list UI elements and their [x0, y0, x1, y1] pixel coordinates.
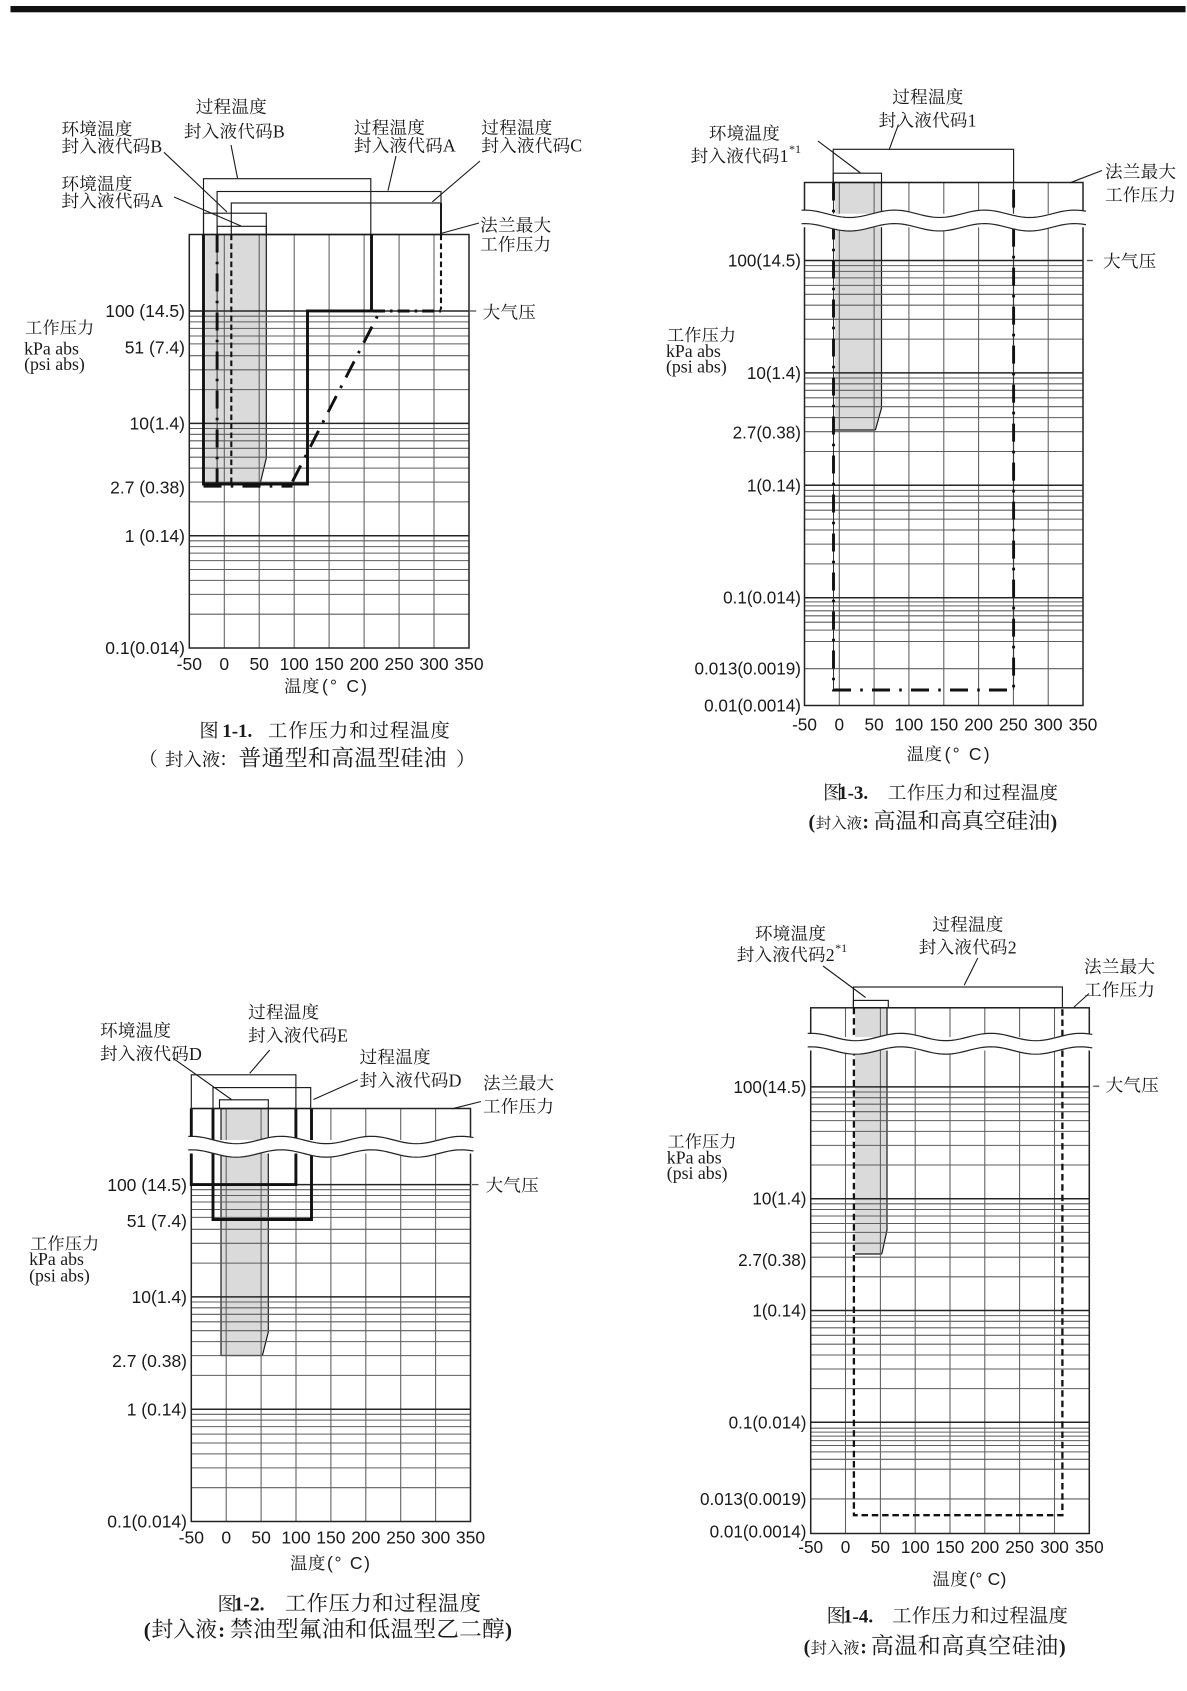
svg-text:10(1.4): 10(1.4): [130, 414, 185, 434]
svg-text:0: 0: [835, 715, 845, 735]
svg-text:300: 300: [419, 654, 448, 674]
svg-text:2.7(0.38): 2.7(0.38): [738, 1251, 806, 1270]
svg-text:*1: *1: [835, 941, 847, 955]
svg-text:1-3.: 1-3.: [838, 783, 868, 804]
svg-text:200: 200: [970, 1537, 999, 1557]
svg-text:0.013(0.0019): 0.013(0.0019): [695, 660, 801, 679]
svg-text:0: 0: [221, 1527, 231, 1547]
svg-text:1 (0.14): 1 (0.14): [125, 526, 185, 546]
svg-text:1 (0.14): 1 (0.14): [127, 1399, 187, 1419]
svg-text:D: D: [449, 1070, 462, 1090]
svg-text::: :: [218, 1618, 225, 1642]
svg-text:0.01(0.0014): 0.01(0.0014): [710, 1523, 807, 1542]
svg-text:50: 50: [249, 654, 269, 674]
svg-text:150: 150: [936, 1537, 965, 1557]
svg-text:(: (: [144, 1618, 151, 1642]
svg-text:150: 150: [316, 1527, 345, 1547]
svg-text:100: 100: [281, 1527, 310, 1547]
svg-text:2: 2: [826, 945, 835, 965]
svg-text:(: (: [809, 811, 816, 833]
svg-text:E: E: [337, 1026, 348, 1046]
svg-text:50: 50: [251, 1527, 271, 1547]
svg-text:150: 150: [314, 654, 343, 674]
svg-text:-50: -50: [798, 1537, 823, 1557]
svg-text:1: 1: [780, 146, 789, 166]
svg-text::: :: [860, 1637, 867, 1659]
svg-text:-50: -50: [179, 1527, 205, 1547]
svg-text:100 (14.5): 100 (14.5): [107, 1175, 187, 1195]
svg-text:-50: -50: [792, 715, 817, 735]
svg-text:): ): [1051, 811, 1058, 833]
svg-text:250: 250: [999, 715, 1028, 735]
svg-text:*1: *1: [789, 142, 801, 156]
svg-text:1-4.: 1-4.: [843, 1606, 873, 1627]
svg-text:200: 200: [351, 1527, 380, 1547]
svg-text:350: 350: [1069, 715, 1098, 735]
svg-text:100 (14.5): 100 (14.5): [105, 301, 185, 321]
svg-text:250: 250: [384, 654, 413, 674]
svg-text:100: 100: [901, 1537, 930, 1557]
svg-text::: :: [862, 811, 869, 833]
svg-text:(psi abs): (psi abs): [29, 1265, 90, 1286]
svg-text:200: 200: [964, 715, 993, 735]
svg-text:A: A: [443, 136, 456, 156]
svg-text:(° C): (° C): [322, 676, 367, 696]
svg-text:B: B: [273, 122, 285, 142]
svg-text:0: 0: [841, 1537, 851, 1557]
svg-text:10(1.4): 10(1.4): [747, 364, 801, 383]
svg-text:51 (7.4): 51 (7.4): [127, 1211, 187, 1231]
svg-text:(° C): (° C): [969, 1569, 1006, 1589]
svg-text:250: 250: [386, 1527, 415, 1547]
svg-text:0.01(0.0014): 0.01(0.0014): [704, 697, 801, 716]
svg-text:10(1.4): 10(1.4): [132, 1287, 187, 1307]
svg-text:C: C: [570, 136, 582, 156]
svg-text:2: 2: [1008, 937, 1017, 957]
svg-text:2.7 (0.38): 2.7 (0.38): [110, 477, 185, 497]
svg-text:50: 50: [865, 715, 884, 735]
svg-text:0: 0: [219, 654, 229, 674]
svg-text:1(0.14): 1(0.14): [752, 1302, 806, 1321]
svg-text:D: D: [189, 1044, 202, 1064]
svg-text:(psi abs): (psi abs): [24, 354, 85, 375]
svg-text:150: 150: [929, 715, 958, 735]
svg-text:B: B: [150, 136, 162, 156]
svg-text:0.013(0.0019): 0.013(0.0019): [700, 1490, 806, 1509]
svg-text:200: 200: [349, 654, 378, 674]
svg-text:(° C): (° C): [945, 744, 990, 764]
svg-text:51 (7.4): 51 (7.4): [125, 337, 185, 357]
svg-text:300: 300: [1034, 715, 1063, 735]
svg-text:300: 300: [421, 1527, 450, 1547]
svg-text:350: 350: [454, 654, 483, 674]
svg-text:350: 350: [1075, 1537, 1104, 1557]
svg-text:1-2.: 1-2.: [234, 1595, 265, 1616]
svg-text:1-1.: 1-1.: [222, 721, 252, 742]
svg-text:10(1.4): 10(1.4): [752, 1190, 806, 1209]
svg-text:(: (: [804, 1637, 811, 1659]
svg-text:0.1(0.014): 0.1(0.014): [105, 638, 185, 658]
svg-text:1(0.14): 1(0.14): [747, 476, 801, 495]
svg-text:A: A: [150, 191, 163, 211]
svg-text:100(14.5): 100(14.5): [728, 252, 801, 271]
svg-text:(psi abs): (psi abs): [667, 1163, 728, 1184]
svg-text:250: 250: [1005, 1537, 1034, 1557]
svg-text:0.1(0.014): 0.1(0.014): [729, 1413, 807, 1432]
svg-text:(° C): (° C): [327, 1553, 370, 1573]
svg-text:(psi abs): (psi abs): [666, 357, 727, 378]
svg-text:2.7 (0.38): 2.7 (0.38): [112, 1351, 187, 1371]
svg-text:350: 350: [456, 1527, 485, 1547]
svg-text:): ): [505, 1618, 512, 1642]
svg-text:): ): [1059, 1637, 1066, 1659]
svg-text:-50: -50: [177, 654, 203, 674]
svg-text:50: 50: [871, 1537, 890, 1557]
svg-text:100(14.5): 100(14.5): [733, 1078, 806, 1097]
svg-text:1: 1: [968, 110, 977, 130]
svg-text:300: 300: [1040, 1537, 1069, 1557]
svg-text:0.1(0.014): 0.1(0.014): [723, 589, 801, 608]
svg-text:100: 100: [895, 715, 924, 735]
svg-text:100: 100: [280, 654, 309, 674]
svg-text:0.1(0.014): 0.1(0.014): [107, 1512, 187, 1532]
svg-text:2.7(0.38): 2.7(0.38): [733, 424, 801, 443]
